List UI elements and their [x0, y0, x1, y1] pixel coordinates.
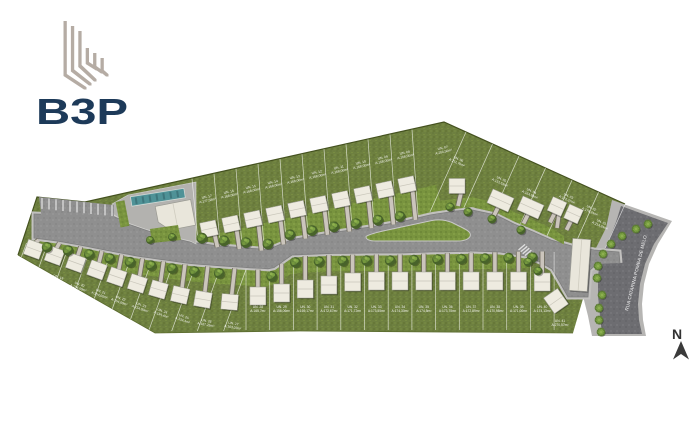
svg-text:A:174,13m²: A:174,13m²: [534, 309, 552, 313]
svg-text:A:174,5m²: A:174,5m²: [416, 309, 432, 313]
svg-text:B3P: B3P: [36, 91, 128, 132]
svg-text:A:169,17m²: A:169,17m²: [297, 309, 315, 313]
svg-text:A:173,75m²: A:173,75m²: [439, 309, 457, 313]
svg-text:A:156,06m²: A:156,06m²: [273, 309, 291, 313]
svg-text:A:172,89m²: A:172,89m²: [463, 309, 481, 313]
svg-text:A:172,67m²: A:172,67m²: [320, 309, 338, 313]
svg-text:A:174,30m²: A:174,30m²: [391, 309, 409, 313]
svg-text:A:270,57m²: A:270,57m²: [551, 323, 569, 327]
svg-text:N: N: [672, 326, 682, 342]
svg-text:A:171,72m²: A:171,72m²: [344, 309, 362, 313]
svg-text:A:165,7m²: A:165,7m²: [250, 309, 266, 313]
svg-text:A:170,98m²: A:170,98m²: [486, 309, 504, 313]
svg-text:A:173,55m²: A:173,55m²: [368, 309, 386, 313]
svg-text:A:171,00m²: A:171,00m²: [510, 309, 528, 313]
